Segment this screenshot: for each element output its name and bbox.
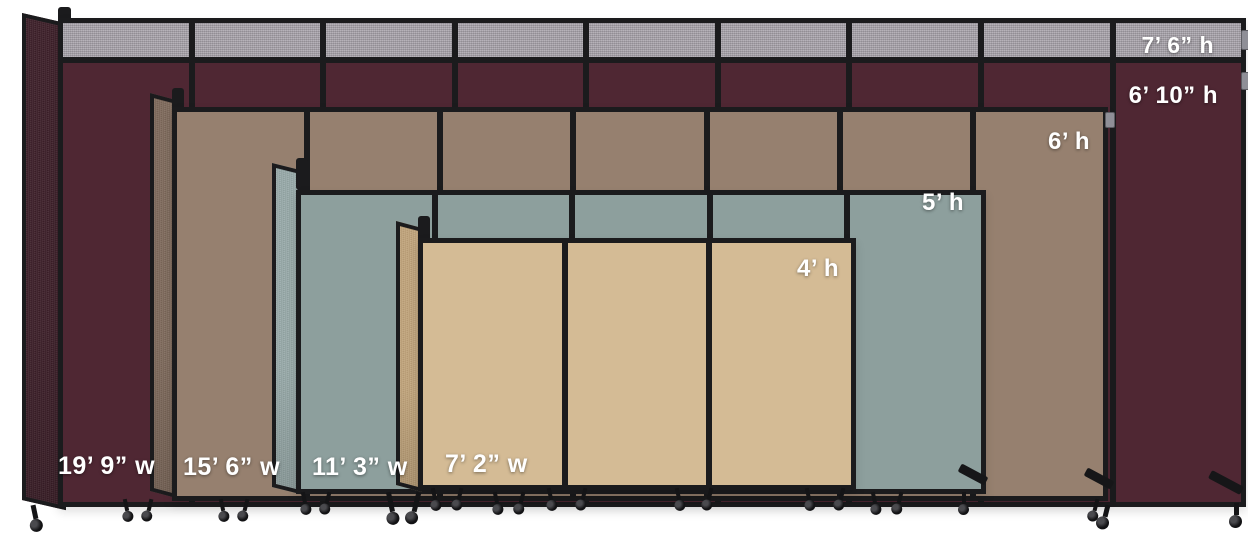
width-label-19ft9: 19’ 9” w [58, 452, 155, 481]
height-label-4ft: 4’ h [797, 255, 839, 283]
height-label-6ft: 6’ h [1048, 128, 1090, 156]
fabric-panel [568, 243, 707, 485]
fabric-panel [423, 243, 562, 485]
width-label-11ft3: 11’ 3” w [312, 453, 408, 482]
product-image-stage: 7’ 6” h 6’ 10” h 6’ h 5’ h 4’ h 19’ 9” w… [0, 0, 1248, 542]
width-label-7ft2: 7’ 2” w [445, 450, 528, 479]
caster-wheel [412, 492, 422, 513]
panel-fabric [568, 243, 707, 485]
caster-wheel [386, 492, 395, 513]
width-label-15ft6: 15’ 6” w [183, 453, 280, 482]
panel-fabric [423, 243, 562, 485]
height-label-6ft10: 6’ 10” h [1129, 82, 1218, 110]
height-label-7ft6: 7’ 6” h [1141, 32, 1214, 59]
height-label-5ft: 5’ h [922, 189, 964, 217]
